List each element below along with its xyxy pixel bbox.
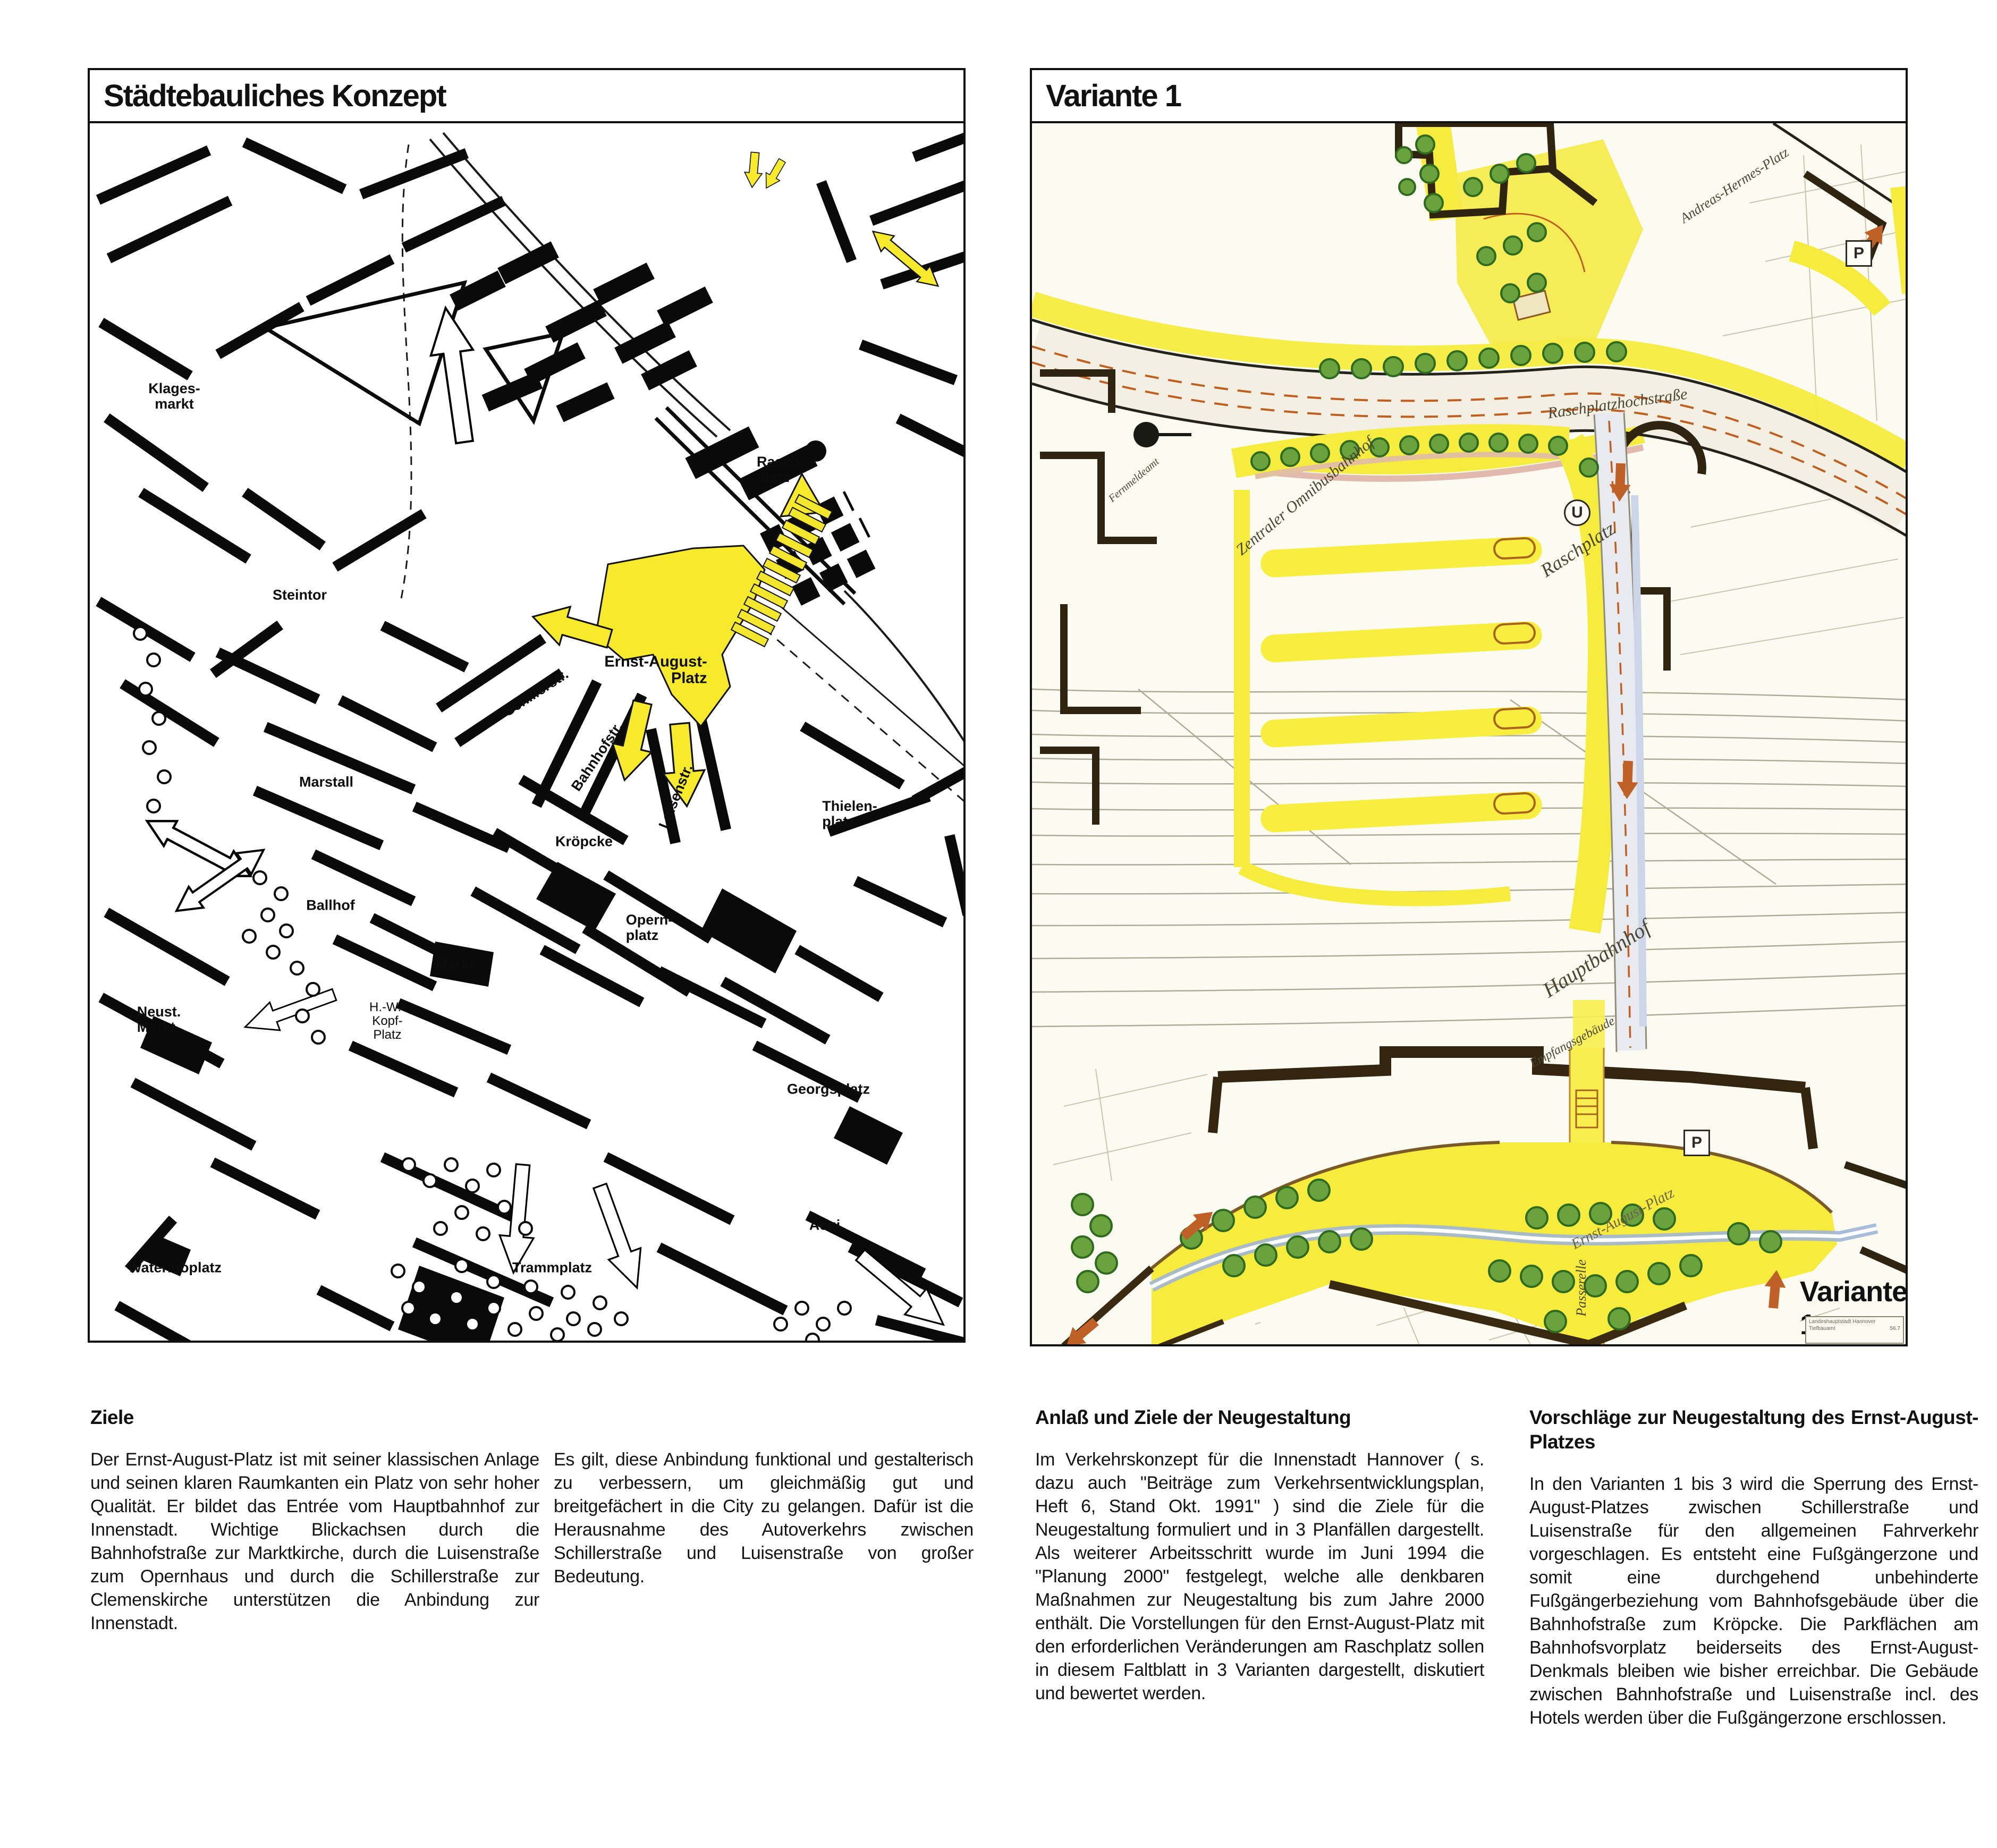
block-cluster: [462, 253, 701, 410]
titleblock-authority: Landeshauptstadt Hannover: [1809, 1319, 1876, 1326]
plan-titleblock: Landeshauptstadt Hannover Tiefbauamt 56.…: [1805, 1316, 1904, 1344]
label-raschplatz: Rasch- platz: [757, 454, 805, 485]
label-kroepcke: Kröpcke: [555, 834, 613, 849]
railway-tracks: [1032, 689, 1906, 1027]
label-marstall: Marstall: [299, 774, 353, 790]
column-vorschlaege-heading: Vorschläge zur Neugestaltung des Ernst-A…: [1529, 1405, 1978, 1454]
label-ballhof: Ballhof: [306, 897, 355, 913]
label-trammplatz: Trammplatz: [512, 1260, 592, 1275]
label-hw-kopf-platz: H.-W.- Kopf- Platz: [369, 1001, 405, 1042]
label-passerelle: Passerelle: [1573, 1259, 1589, 1316]
variante1-panel: Variante 1: [1030, 68, 1908, 1346]
label-waterlooplatz: Waterlooplatz: [128, 1260, 222, 1275]
label-georgsplatz: Georgsplatz: [787, 1081, 870, 1097]
column-anbindung-heading: [554, 1405, 974, 1430]
parking-icon: P: [1683, 1130, 1710, 1156]
titleblock-office: Tiefbauamt: [1809, 1326, 1835, 1333]
concept-panel-title: Städtebauliches Konzept: [90, 70, 963, 123]
pedestrian-highlight: [527, 152, 944, 808]
label-klagesmarkt: Klages- markt: [148, 381, 200, 412]
parking-icon: P: [1846, 240, 1872, 267]
variante1-map: Raschplatzhochstraße Raschplatz Andreas-…: [1032, 123, 1906, 1344]
label-neustaedter-markt: Neust. Markt: [137, 1004, 181, 1035]
column-vorschlaege-body: In den Varianten 1 bis 3 wird die Sperru…: [1529, 1472, 1978, 1730]
brochure-page: { "left_panel": { "title": "Städtebaulic…: [0, 0, 1997, 1848]
column-anlass: Anlaß und Ziele der Neugestaltung Im Ver…: [1035, 1405, 1484, 1705]
column-ziele-body: Der Ernst-August-Platz ist mit seiner kl…: [90, 1448, 539, 1635]
concept-map: Klages- markt Steintor Rasch- platz Erns…: [90, 123, 963, 1341]
label-markt: Markt: [436, 957, 474, 972]
variante1-panel-title: Variante 1: [1032, 70, 1906, 123]
label-opernplatz: Opern- platz: [626, 912, 673, 943]
column-anbindung: Es gilt, diese Anbindung funktional und …: [554, 1405, 974, 1588]
city-blocks: [103, 139, 963, 1341]
label-ernst-august-platz: Ernst-August- Platz: [604, 654, 707, 688]
concept-panel: Städtebauliches Konzept: [88, 68, 966, 1343]
titleblock-number: 56.7: [1890, 1326, 1900, 1333]
label-steintor: Steintor: [273, 587, 327, 603]
column-ziele-heading: Ziele: [90, 1405, 539, 1430]
trees-cluster: [134, 627, 851, 1341]
figure-ground-map-graphic: [90, 123, 963, 1341]
plan-map-graphic: [1032, 123, 1906, 1344]
column-ziele: Ziele Der Ernst-August-Platz ist mit sei…: [90, 1405, 539, 1635]
label-aegi: Aegi: [809, 1217, 841, 1233]
label-thielenplatz: Thielen- platz: [822, 799, 877, 829]
column-anlass-body: Im Verkehrskonzept für die Innenstadt Ha…: [1035, 1448, 1484, 1705]
column-anbindung-body: Es gilt, diese Anbindung funktional und …: [554, 1448, 974, 1588]
ubahn-icon: U: [1564, 499, 1590, 526]
column-vorschlaege: Vorschläge zur Neugestaltung des Ernst-A…: [1529, 1405, 1978, 1730]
column-anlass-heading: Anlaß und Ziele der Neugestaltung: [1035, 1405, 1484, 1430]
